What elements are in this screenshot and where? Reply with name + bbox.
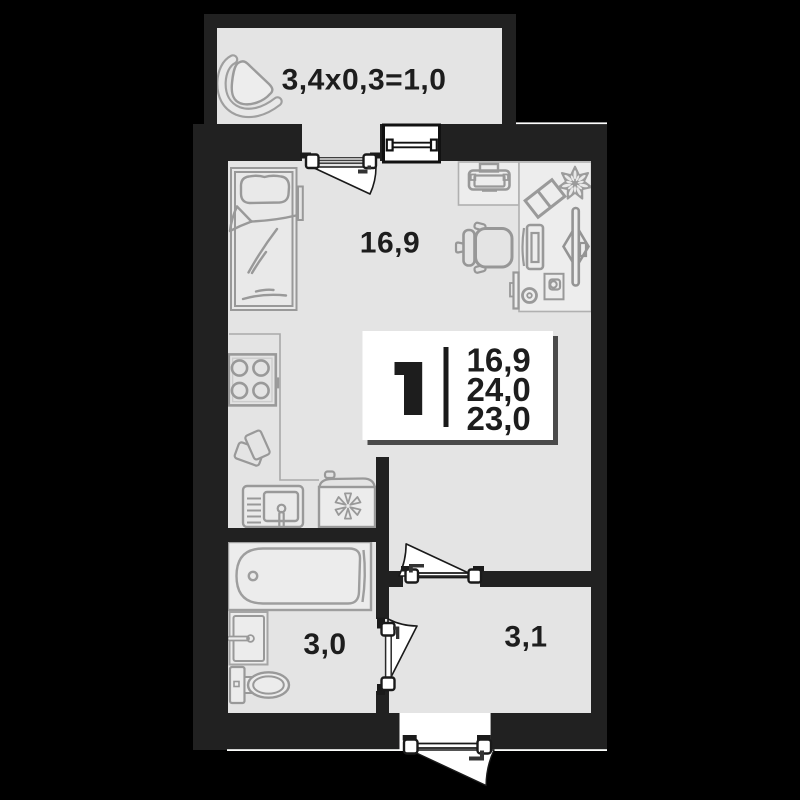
svg-text:3,1: 3,1 bbox=[504, 621, 547, 654]
svg-text:3,0: 3,0 bbox=[303, 628, 346, 661]
svg-text:23,0: 23,0 bbox=[467, 400, 531, 437]
svg-text:16,9: 16,9 bbox=[360, 227, 420, 260]
svg-text:3,4x0,3=1,0: 3,4x0,3=1,0 bbox=[282, 64, 447, 97]
